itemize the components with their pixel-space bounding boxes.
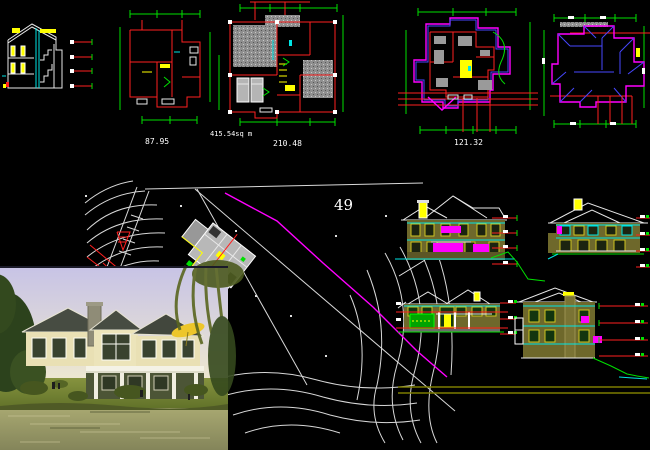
access-road bbox=[107, 187, 149, 271]
floor-plan-upper bbox=[112, 2, 216, 130]
floor-plan-second bbox=[398, 2, 538, 144]
roof-lines bbox=[517, 288, 597, 302]
beds-furniture bbox=[237, 78, 263, 102]
area-label-total: 415.54sq m bbox=[210, 130, 252, 138]
garage-door bbox=[410, 314, 434, 329]
area-label-upper-floor: 87.95 bbox=[145, 137, 169, 146]
elevation-front bbox=[396, 284, 524, 352]
area-label-ground-floor: 210.48 bbox=[273, 139, 302, 148]
elevation-section bbox=[515, 284, 650, 380]
floor-plan-ground bbox=[215, 0, 350, 130]
elevation-rear bbox=[395, 188, 550, 284]
site-lot-number: 49 bbox=[334, 196, 353, 214]
area-label-second-floor: 121.32 bbox=[454, 138, 483, 147]
elevation-side-right bbox=[548, 193, 650, 273]
roof-outline bbox=[552, 26, 644, 107]
sheet-border-lines bbox=[398, 384, 650, 398]
building-section-drawing bbox=[2, 4, 112, 114]
roof-lines bbox=[548, 203, 648, 223]
villa-rendering-photo bbox=[0, 266, 228, 450]
dimension-lines bbox=[544, 14, 644, 128]
section-outline bbox=[8, 24, 62, 88]
roof-lines bbox=[401, 196, 507, 220]
roof-plan bbox=[540, 8, 650, 132]
level-dimensions bbox=[599, 303, 648, 356]
cad-drawing-viewport[interactable]: 87.95 415.54sq m 210.48 121.32 49 bbox=[0, 0, 650, 450]
section-level-dimension-arrows bbox=[70, 39, 92, 89]
